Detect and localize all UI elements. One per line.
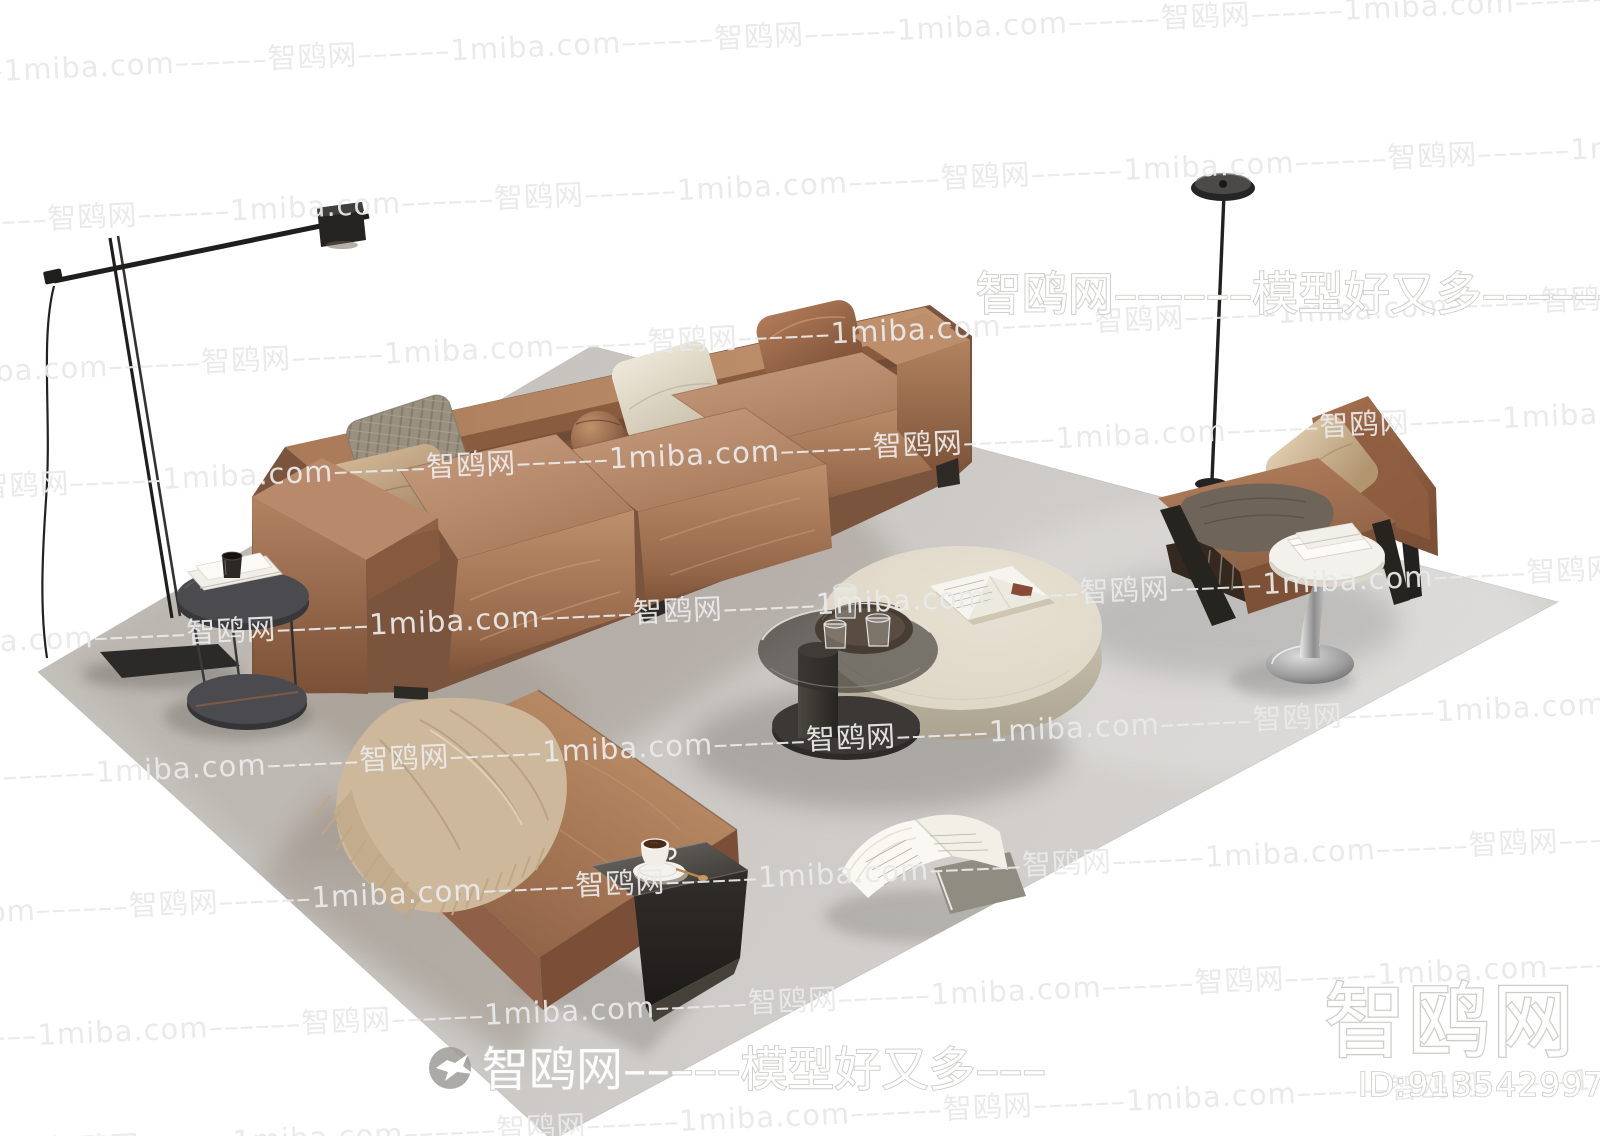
lamp-pole (110, 238, 172, 618)
lamp-pole-2 (118, 236, 180, 616)
brand-line-bottom-text: 智鸥网–––––模型好又多––– (482, 1043, 1046, 1098)
scene-svg: 1miba.com––––––智鸥网––––––1miba.com––––––智… (0, 0, 1600, 1136)
brand-line-top: 智鸥网––––––模型好又多–––––– (976, 267, 1600, 321)
render-canvas: 1miba.com––––––智鸥网––––––1miba.com––––––智… (0, 0, 1600, 1136)
watermark-row: 1miba.com––––––智鸥网––––––1miba.com––––––智… (0, 0, 1600, 108)
site-watermark-large: 智鸥网 ID:913542997 (1324, 975, 1600, 1104)
espresso-glass (222, 552, 242, 578)
site-name-text: 智鸥网 (1324, 975, 1576, 1070)
watermark-row: 1miba.com––––––智鸥网––––––1miba.com––––––智… (0, 105, 1600, 248)
model-id-text: ID:913542997 (1358, 1065, 1600, 1104)
brand-line-bottom: 智鸥网–––––模型好又多––– (429, 1043, 1046, 1098)
